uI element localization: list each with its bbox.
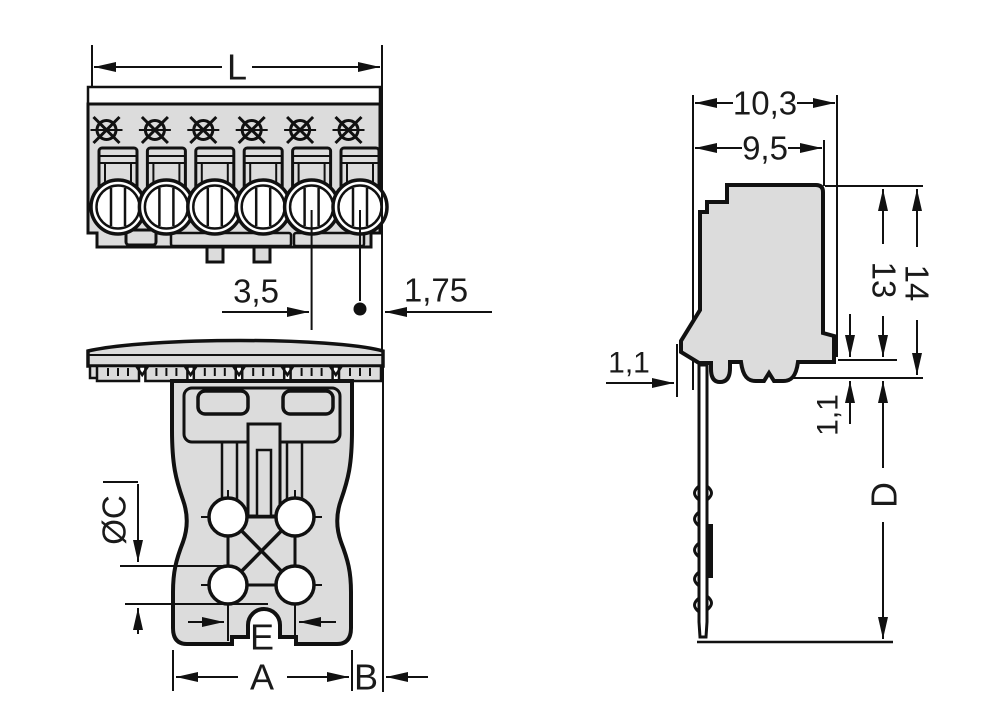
dim-pin-length: D [864,381,905,639]
front-top-strip [88,87,380,104]
flange-ribs [90,366,382,381]
dim-housing-depth: 9,5 [695,130,822,167]
dim-label-pitch: 3,5 [233,273,279,310]
dim-label-pin-length: D [864,482,905,508]
front-foot-left [207,247,223,262]
dim-label-latch-offset: 1,1 [608,347,650,380]
flange-cap [88,341,383,367]
inner-block-right [283,391,333,414]
dim-label-base-width: A [250,657,274,698]
dim-label-side-offset: B [354,657,378,698]
dim-label-L: L [227,47,247,88]
dim-label-half-pitch: 1,75 [404,272,468,309]
center-rod [257,450,271,516]
drawing-svg: L 3,5 1,75 [0,0,1000,712]
solder-pin [695,365,714,637]
dim-label-height-housing: 13 [866,262,903,299]
dim-label-hole-diameter: ØC [96,495,133,545]
dim-base-width: A [173,650,352,698]
pitch-reference-dot [354,303,367,316]
dim-side-offset: B [354,657,428,698]
dim-total-depth: 10,3 [695,85,835,122]
dim-label-pin-shoulder: 1,1 [812,394,845,436]
dim-label-hole-pitch: E [250,617,274,658]
front-foot-right [254,247,270,262]
dim-latch-offset: 1,1 [606,344,677,397]
side-view [681,95,923,642]
side-housing [681,185,834,382]
dim-label-total-depth: 10,3 [733,85,797,122]
dim-height-total: 14 [899,189,936,375]
dim-label-height-total: 14 [899,265,936,302]
inner-block-left [198,391,248,414]
pin-contact-zone [706,524,713,578]
dim-label-housing-depth: 9,5 [742,130,788,167]
dim-height-housing: 13 [866,189,903,357]
front-view [88,87,387,262]
technical-drawing: L 3,5 1,75 [0,0,1000,712]
